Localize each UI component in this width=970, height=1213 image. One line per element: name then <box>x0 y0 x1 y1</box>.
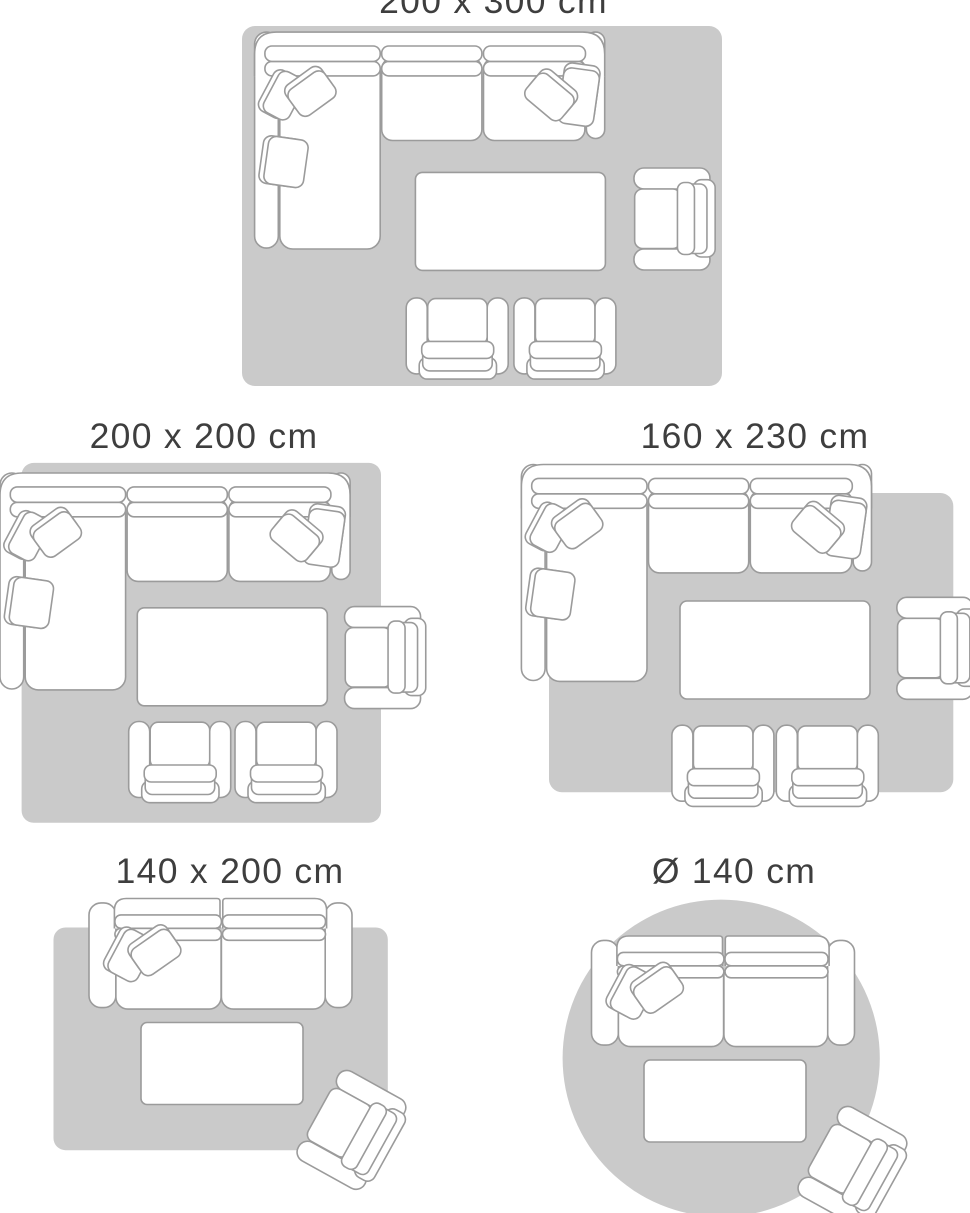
svg-text:160 x 230 cm: 160 x 230 cm <box>641 416 870 456</box>
svg-text:Ø 140 cm: Ø 140 cm <box>652 851 816 891</box>
svg-text:140 x 200 cm: 140 x 200 cm <box>116 851 345 891</box>
svg-text:200 x 300 cm: 200 x 300 cm <box>379 0 608 21</box>
svg-text:200 x 200 cm: 200 x 200 cm <box>90 416 319 456</box>
